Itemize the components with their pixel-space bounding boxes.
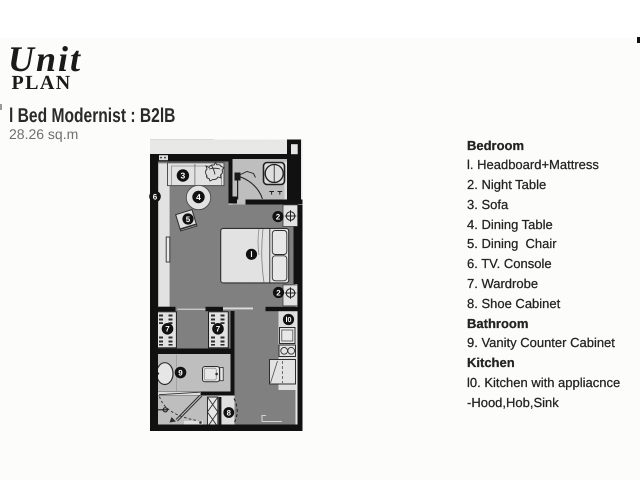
svg-text:l0: l0	[286, 315, 292, 324]
svg-text:5: 5	[186, 215, 191, 224]
svg-text:7: 7	[216, 325, 221, 334]
svg-text:7: 7	[165, 325, 170, 334]
svg-text:2: 2	[276, 212, 281, 221]
svg-text:4: 4	[196, 192, 201, 202]
svg-text:8: 8	[227, 408, 232, 417]
svg-text:l: l	[250, 250, 252, 259]
svg-text:9: 9	[178, 368, 183, 377]
svg-text:3: 3	[181, 170, 186, 180]
svg-text:6: 6	[153, 192, 158, 201]
svg-text:2: 2	[276, 288, 281, 297]
